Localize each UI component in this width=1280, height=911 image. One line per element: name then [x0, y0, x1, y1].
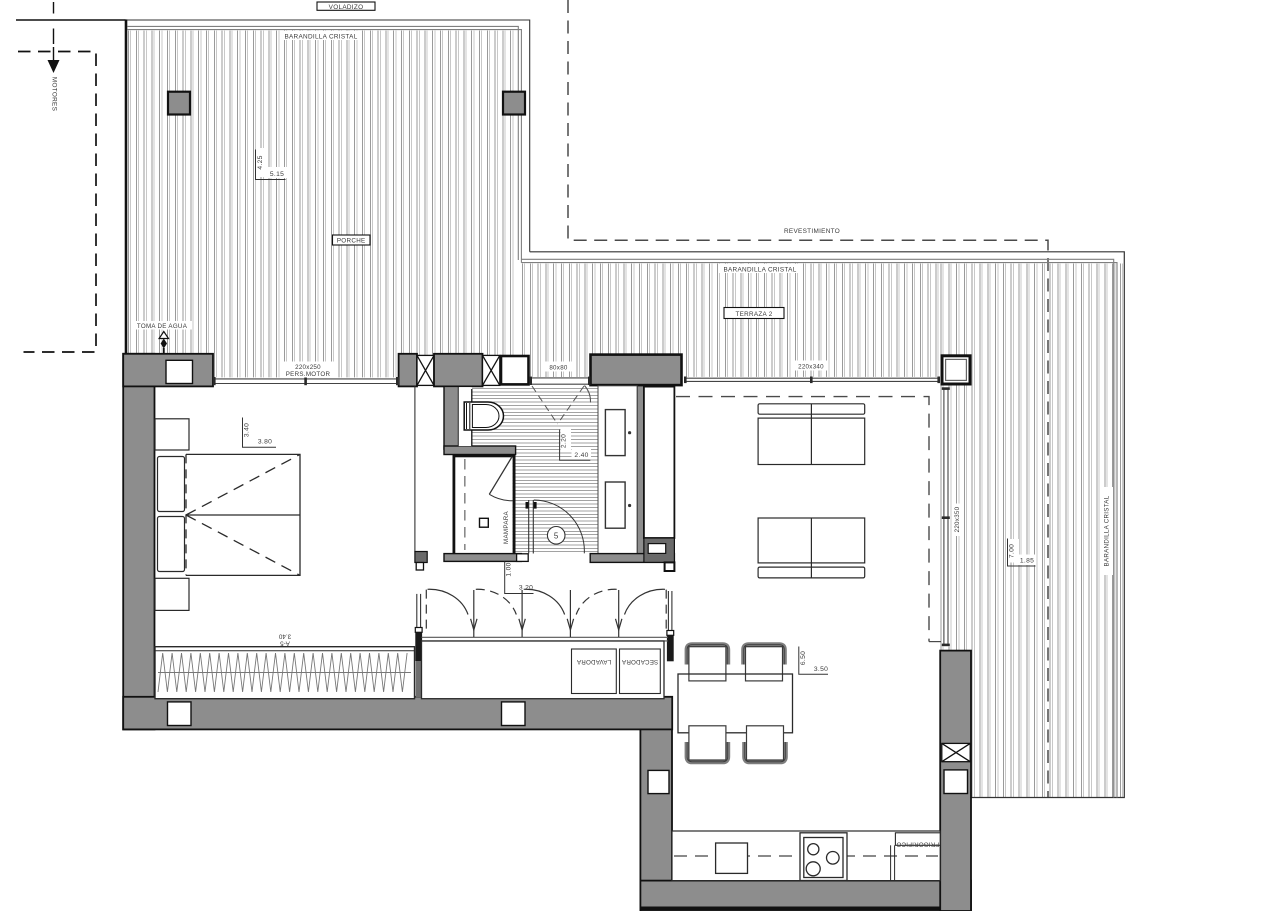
svg-text:3.40: 3.40 [278, 632, 291, 639]
svg-text:REVESTIMIENTO: REVESTIMIENTO [784, 228, 840, 235]
svg-text:PERS.MOTOR: PERS.MOTOR [286, 371, 331, 378]
svg-text:A-5: A-5 [280, 640, 290, 647]
svg-text:1.00: 1.00 [506, 562, 513, 576]
svg-text:TOMA DE AGUA: TOMA DE AGUA [137, 323, 188, 330]
svg-text:5.15: 5.15 [270, 171, 284, 178]
svg-text:BARANDILLA CRISTAL: BARANDILLA CRISTAL [1104, 495, 1111, 566]
svg-text:BARANDILLA CRISTAL: BARANDILLA CRISTAL [723, 267, 796, 274]
svg-text:7.00: 7.00 [1009, 544, 1016, 558]
svg-text:1.85: 1.85 [1020, 558, 1034, 565]
svg-text:3.80: 3.80 [258, 439, 272, 446]
svg-text:TERRAZA 2: TERRAZA 2 [736, 311, 773, 318]
svg-text:3.40: 3.40 [244, 423, 251, 437]
svg-text:5: 5 [554, 531, 559, 540]
svg-text:2.20: 2.20 [561, 434, 568, 448]
svg-text:220x350: 220x350 [954, 506, 961, 532]
svg-text:MAMPARA: MAMPARA [503, 510, 510, 543]
svg-text:80x80: 80x80 [549, 365, 568, 372]
svg-text:BARANDILLA CRISTAL: BARANDILLA CRISTAL [284, 34, 357, 41]
svg-text:SECADORA: SECADORA [621, 658, 658, 665]
svg-text:FRIGORIFICO: FRIGORIFICO [896, 841, 939, 848]
svg-text:LAVADORA: LAVADORA [576, 658, 611, 665]
svg-text:4.25: 4.25 [257, 155, 264, 169]
svg-text:3.50: 3.50 [814, 666, 828, 673]
svg-text:MOTORES: MOTORES [51, 77, 58, 111]
svg-text:3.20: 3.20 [519, 585, 533, 592]
svg-text:220x340: 220x340 [798, 364, 824, 371]
svg-text:2.40: 2.40 [574, 452, 588, 459]
svg-text:VOLADIZO: VOLADIZO [329, 4, 364, 11]
svg-text:PORCHE: PORCHE [337, 238, 366, 245]
svg-text:6.50: 6.50 [800, 651, 807, 665]
